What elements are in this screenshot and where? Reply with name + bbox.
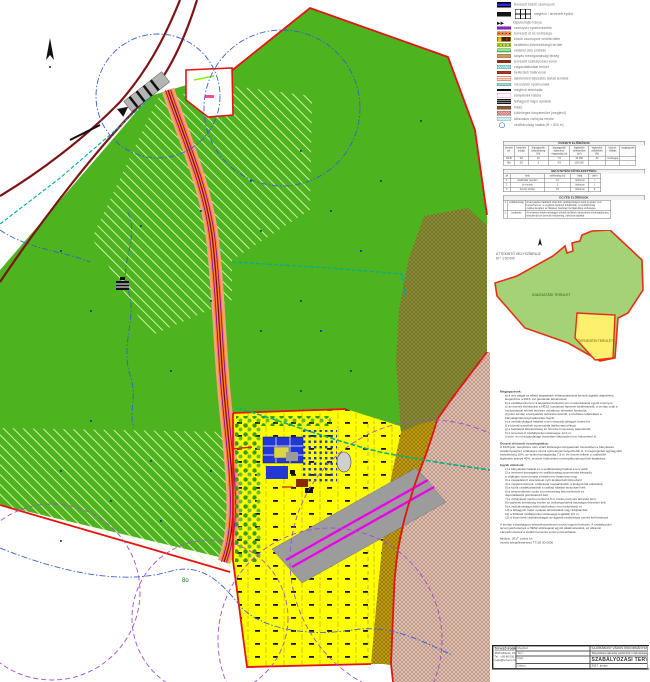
tree-row	[235, 424, 261, 562]
legend-item: szennyvíz nyomóvezeték	[497, 26, 649, 30]
legend-swatch-icon	[497, 32, 511, 36]
legend-label: szennyvíz nyomóvezeték	[514, 26, 552, 30]
table-cell: A beültetési kötelezettséggel érintett t…	[525, 211, 611, 219]
legend-swatch-icon	[497, 117, 511, 121]
firm-email: iroda@tervezo.hu	[495, 659, 515, 663]
inset-scale: M = 1:50 000	[496, 257, 515, 261]
legend-label: meglévő telekhatár	[514, 88, 543, 92]
legend-label: vízgazdálkodási terület	[514, 65, 549, 69]
table-row: 3.övezet szélén15őshonosII.	[503, 187, 601, 192]
legend-swatch-icon	[497, 54, 511, 58]
legend-swatch-icon	[497, 49, 511, 53]
data-table: EGYÉB ELŐÍRÁSOK1.védőtávolságA bányatele…	[503, 196, 645, 219]
firm-name: Tervező Iroda Kft.	[495, 647, 515, 651]
table-cell: -	[606, 161, 620, 166]
legend-label: tervezett út és védősávja	[514, 32, 552, 36]
table-row: 1.védőtávolságA bányatelek határától szá…	[503, 200, 611, 211]
legend-item: ▶▶kapubehajtó iránya	[497, 21, 649, 25]
inset-map: ÁTTEKINTŐ HELYSZÍNRAJZ M = 1:50 000 IGAZ…	[490, 230, 650, 380]
legend-item: lakóterületi fejlesztés távlati területe	[497, 76, 649, 81]
legend-swatch-icon: ▶▶	[497, 21, 510, 25]
drawing-title: SZABÁLYOZÁSI TERV	[592, 657, 648, 663]
titleblock-label-date: Dátum:	[516, 664, 590, 669]
titleblock-label-drawing: Rajz:	[516, 656, 590, 664]
legend-label: tervezett szabályozási vonal	[514, 60, 557, 64]
legend-swatch-icon	[497, 60, 511, 63]
legend-swatch-icon	[497, 106, 511, 110]
table-header-cell: beépítés módja	[514, 146, 528, 157]
legend-swatch-icon	[497, 99, 511, 104]
table-cell: 3	[528, 161, 548, 166]
legend-label: meglévő / tervezett épület	[534, 12, 573, 16]
legend-label: tervezett közúti csomópont	[514, 3, 555, 7]
legend-label: lakóterületi fejlesztés távlati területe	[514, 77, 568, 81]
well-label: 8o	[182, 578, 189, 584]
legend: tervezett közúti csomópontmeglévő / terv…	[497, 2, 649, 142]
table-row: MáSZ34,5100 000---	[503, 161, 636, 166]
legend-swatch-icon	[497, 83, 511, 86]
legend-label: földút	[514, 106, 522, 110]
legend-item: tervezett út és védősávja	[497, 32, 649, 36]
inset-sub-label: TERVEZÉSI TERÜLET	[578, 338, 613, 343]
legend-label: vízvezeték nyomvonala	[514, 83, 549, 87]
table-cell: 100 000	[570, 161, 588, 166]
notes-block: Megjegyzések:a) a terv alapja az állami …	[500, 390, 646, 682]
note-line: vezető településtervező TT/1É 00-0000	[500, 541, 646, 545]
table-header-cell: övezeti jel	[503, 146, 514, 157]
data-table: BEÜLTETÉSI KÖTELEZETTSÉGjelhelyszélesség…	[503, 169, 645, 192]
table-row: 2.beültetésA beültetési kötelezettséggel…	[503, 211, 611, 219]
titleblock-date: 2017. június	[590, 664, 648, 669]
legend-item: meglévő / tervezett épület	[497, 9, 649, 19]
legend-swatch-icon	[497, 111, 511, 116]
legend-item: felhagyott major épületei	[497, 99, 649, 104]
table-header-cell: megjegyzés	[620, 146, 636, 157]
table-cell: -	[620, 161, 636, 166]
inset-north-icon	[538, 238, 542, 246]
inset-planning-area	[575, 313, 615, 360]
legend-swatch-icon	[497, 12, 511, 17]
legend-label: közúti csomópont védőterülete	[514, 38, 560, 42]
legend-item: meglévő telekhatár	[497, 88, 649, 92]
legend-item: vízgazdálkodási terület	[497, 65, 649, 69]
legend-item: beültetési kötelezettségű terület	[497, 43, 649, 47]
table-cell: -	[588, 161, 605, 166]
legend-label: időszakos vízfolyás medre	[514, 117, 554, 121]
plan-sheet: 8o tervezett közúti csomópontmeglévő / t…	[0, 0, 650, 682]
legend-item: tervezett szabályozási vonal	[497, 60, 649, 64]
legend-item: belterületi határvonal	[497, 71, 649, 75]
table-cell: őshonos	[571, 187, 589, 192]
table-cell: beültetés	[508, 211, 525, 219]
table-cell: II.	[589, 187, 601, 192]
legend-swatch-icon	[497, 65, 511, 69]
legend-label: beültetési kötelezettségű terület	[514, 43, 562, 47]
table-header-cell: legnagyobb beépítettség (%)	[528, 146, 548, 157]
inset-title: ÁTTEKINTŐ HELYSZÍNRAJZ	[496, 251, 541, 256]
table-cell: A bányatelek határától számított védőtáv…	[525, 200, 611, 211]
legend-label: különleges bányaterület (meglévő)	[514, 112, 566, 116]
inset-area-label: IGAZGATÁSI TERÜLET	[532, 293, 571, 297]
legend-item: bányatelek határa	[497, 94, 649, 98]
title-block: Megbízó: SAJÓBÁBONY VÁROS ÖNKORMÁNYZATA …	[492, 645, 649, 682]
table-cell: övezet szélén	[511, 187, 544, 192]
legend-item: különleges bányaterület (meglévő)	[497, 111, 649, 116]
legend-swatch-icon	[497, 2, 511, 8]
table-header-cell: legnagyobb építmény-magasság (m)	[548, 146, 570, 157]
titleblock-drawing: SZABÁLYOZÁSI TERV M = 1:4 000	[590, 656, 648, 664]
legend-label: belterületi határvonal	[514, 71, 546, 75]
legend-item: földút	[497, 106, 649, 110]
building-grid-icon	[515, 9, 531, 19]
legend-swatch-icon	[499, 123, 505, 129]
table-header-cell: közmű-ellátás	[606, 146, 620, 157]
table-cell: védőtávolság	[508, 200, 525, 211]
legend-swatch-icon	[497, 71, 511, 74]
table-header-cell: legkisebb zöldfelület (%)	[588, 146, 605, 157]
legend-swatch-icon	[497, 89, 511, 91]
legend-swatch-icon	[497, 94, 511, 98]
legend-swatch-icon	[497, 76, 511, 81]
tree-row-top	[236, 416, 331, 426]
data-table: ÖVEZETI ELŐÍRÁSOKövezeti jelbeépítés mód…	[503, 141, 645, 166]
legend-label: bányatelek határa	[514, 94, 541, 98]
table-cell: 4,5	[548, 161, 570, 166]
legend-item: tanyás mezőgazdasági térség	[497, 54, 649, 58]
legend-label: kapubehajtó iránya	[513, 21, 542, 25]
legend-item: védelmi célú erdősáv	[497, 49, 649, 53]
table-cell: 15	[544, 187, 571, 192]
legend-swatch-icon	[497, 27, 511, 30]
titleblock-firm: Tervező Iroda Kft. 3525 Miskolc, Fő utca…	[493, 646, 516, 669]
table-cell: Má	[503, 161, 514, 166]
legend-swatch-icon	[497, 37, 511, 42]
table-cell: 3.	[503, 187, 510, 192]
legend-label: felhagyott major épületei	[514, 100, 551, 104]
legend-item: időszakos vízfolyás medre	[497, 117, 649, 121]
legend-label: védelmi célú erdősáv	[514, 49, 546, 53]
legend-item: közúti csomópont védőterülete	[497, 37, 649, 42]
legend-item: védőtávolság határa (R = 500 m)	[497, 123, 649, 129]
legend-label: tanyás mezőgazdasági térség	[514, 54, 559, 58]
table-cell: SZ	[514, 161, 528, 166]
legend-swatch-icon	[497, 43, 511, 47]
legend-item: vízvezeték nyomvonala	[497, 83, 649, 87]
legend-label: védőtávolság határa (R = 500 m)	[514, 124, 564, 128]
legend-item: tervezett közúti csomópont	[497, 2, 649, 8]
map-canvas: 8o	[0, 0, 490, 682]
table-header-cell: legkisebb telekterület (m²)	[570, 146, 588, 157]
